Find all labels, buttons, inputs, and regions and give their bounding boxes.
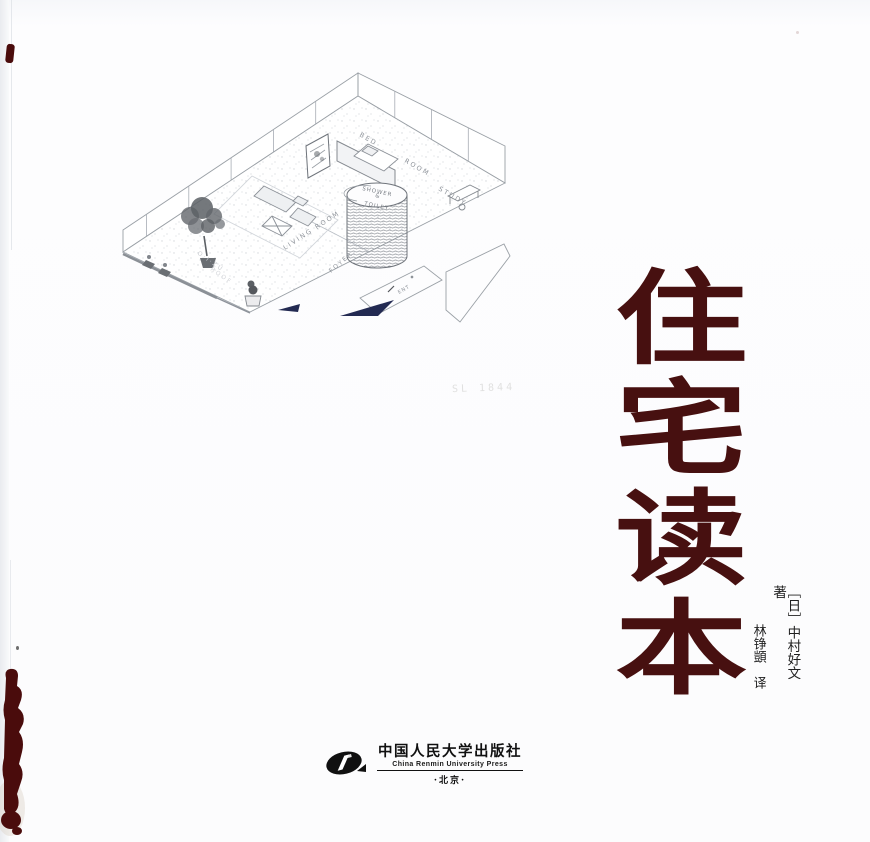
scan-speck [796,31,799,34]
book-cover-scan: BED ROOM STUDY SHOWER & TOILET LIVING RO… [0,0,870,842]
publisher-block: 中国人民大学出版社 China Renmin University Press … [324,740,522,786]
publisher-city: ·北京· [434,773,466,786]
publisher-name-en: China Renmin University Press [377,761,523,771]
binding-ink-stain [0,660,42,842]
ink-mark-small [5,44,15,64]
house-isometric-sketch: BED ROOM STUDY SHOWER & TOILET LIVING RO… [112,58,512,348]
publisher-text: 中国人民大学出版社 China Renmin University Press … [378,740,522,786]
author-original: ［日］中村好文 著 [771,585,799,705]
publisher-name-cn: 中国人民大学出版社 [378,740,522,761]
pencil-note: SL 1844 [452,382,516,395]
scan-speck [16,646,19,650]
paper-crease-line [11,0,12,250]
book-title: 住宅读本 [592,264,735,734]
author-translator: 林铮顗 译 [751,624,765,704]
label-ampersand: & [375,193,382,200]
publisher-logo-icon [324,747,368,779]
